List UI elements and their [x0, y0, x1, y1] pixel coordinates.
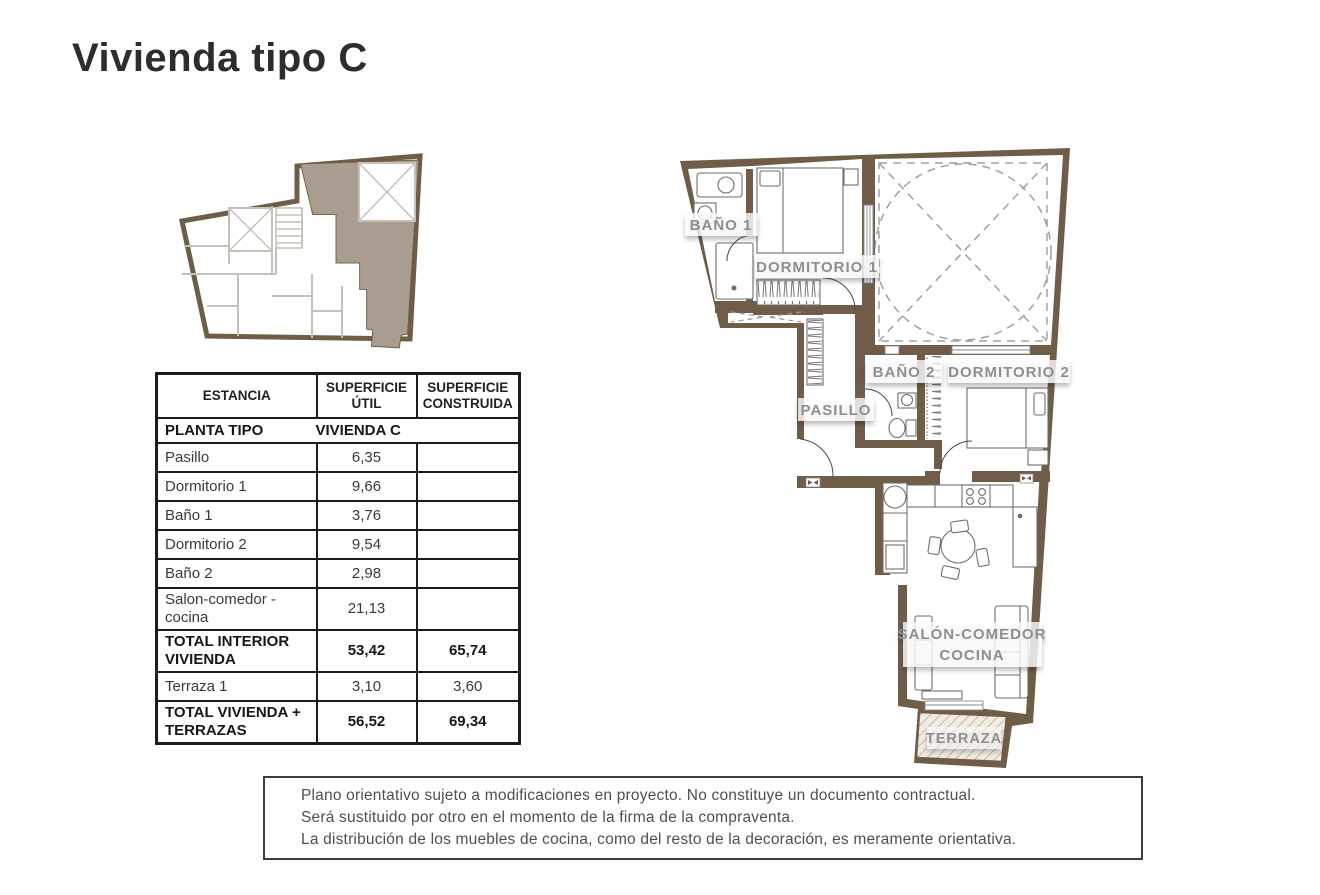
disclaimer-line-2: Será sustituido por otro en el momento d…	[301, 807, 1131, 829]
room-name: Dormitorio 2	[157, 530, 317, 559]
chair	[928, 536, 941, 554]
room-built	[417, 501, 520, 530]
room-util: 6,35	[317, 443, 417, 472]
disclaimer-box: Plano orientativo sujeto a modificacione…	[263, 776, 1143, 860]
areas-table: ESTANCIA SUPERFICIE ÚTIL SUPERFICIE CONS…	[155, 372, 521, 745]
table-row: Salon-comedor - cocina 21,13	[157, 588, 520, 630]
page-title: Vivienda tipo C	[72, 36, 368, 81]
room-util: 56,52	[317, 701, 417, 744]
table-row: Baño 2 2,98	[157, 559, 520, 588]
label-pasillo: PASILLO	[801, 402, 872, 419]
label-terraza: TERRAZA	[926, 731, 1002, 747]
room-name: Terraza 1	[157, 672, 317, 701]
room-util: 9,54	[317, 530, 417, 559]
dining-table	[941, 529, 975, 563]
kitchen-top-counter	[907, 485, 1013, 507]
terraza-sill	[922, 691, 962, 699]
kitchen-sink-round	[884, 486, 906, 508]
label-dormitorio1: DORMITORIO 1	[756, 259, 878, 276]
bano2-toilet	[889, 419, 905, 438]
header-superficie-util: SUPERFICIE ÚTIL	[317, 374, 417, 419]
room-built	[417, 443, 520, 472]
section-row: PLANTA TIPO VIVIENDA C	[157, 418, 520, 443]
label-salon-line2: COCINA	[939, 647, 1004, 664]
room-name: TOTAL VIVIENDA + TERRAZAS	[157, 701, 317, 744]
dorm2-nightstand	[1028, 450, 1048, 465]
room-name: Salon-comedor - cocina	[157, 588, 317, 630]
keyplan-stairs	[276, 208, 302, 248]
stove	[962, 485, 990, 507]
room-util: 9,66	[317, 472, 417, 501]
label-salon-line1: SALÓN-COMEDOR	[898, 625, 1047, 643]
room-name: Baño 1	[157, 501, 317, 530]
room-util: 3,10	[317, 672, 417, 701]
dorm1-nightstand	[844, 169, 858, 185]
room-built	[417, 588, 520, 630]
room-name: Pasillo	[157, 443, 317, 472]
chair	[976, 548, 990, 567]
header-superficie-construida: SUPERFICIE CONSTRUIDA	[417, 374, 520, 419]
table-row: Terraza 1 3,10 3,60	[157, 672, 520, 701]
disclaimer-line-3: La distribución de los muebles de cocina…	[301, 829, 1131, 851]
room-built: 65,74	[417, 630, 520, 672]
room-name: Baño 2	[157, 559, 317, 588]
room-name: Dormitorio 1	[157, 472, 317, 501]
dorm1-pillow	[760, 171, 780, 186]
room-util: 2,98	[317, 559, 417, 588]
label-dormitorio2: DORMITORIO 2	[948, 364, 1070, 381]
room-built	[417, 559, 520, 588]
header-estancia: ESTANCIA	[157, 374, 317, 419]
room-built	[417, 530, 520, 559]
table-row: Dormitorio 1 9,66	[157, 472, 520, 501]
room-built: 69,34	[417, 701, 520, 744]
table-row-total-vivienda: TOTAL VIVIENDA + TERRAZAS 56,52 69,34	[157, 701, 520, 744]
entrance-opening	[796, 439, 805, 476]
table-row: Baño 1 3,76	[157, 501, 520, 530]
room-util: 21,13	[317, 588, 417, 630]
room-built: 3,60	[417, 672, 520, 701]
table-row: Pasillo 6,35	[157, 443, 520, 472]
keyplan-patio-1	[359, 163, 415, 221]
areas-table-header-row: ESTANCIA SUPERFICIE ÚTIL SUPERFICIE CONS…	[157, 374, 520, 419]
kitchen-tall-unit	[1013, 507, 1037, 567]
bano1-shower	[716, 243, 753, 299]
room-util: 53,42	[317, 630, 417, 672]
table-row: Dormitorio 2 9,54	[157, 530, 520, 559]
floorplan-drawing: BAÑO 1 DORMITORIO 1 BAÑO 2 DORMITORIO 2 …	[670, 143, 1090, 778]
section-planta-tipo: PLANTA TIPO	[165, 422, 263, 439]
dorm2-pillow	[1034, 393, 1045, 415]
disclaimer-line-1: Plano orientativo sujeto a modificacione…	[301, 785, 1131, 807]
room-util: 3,76	[317, 501, 417, 530]
label-bano1: BAÑO 1	[690, 216, 753, 234]
floorplan: BAÑO 1 DORMITORIO 1 BAÑO 2 DORMITORIO 2 …	[670, 143, 1090, 778]
section-vivienda-c: VIVIENDA C	[316, 422, 401, 440]
keyplan-patio-2	[229, 208, 272, 251]
room-name: TOTAL INTERIOR VIVIENDA	[157, 630, 317, 672]
label-bano2: BAÑO 2	[873, 363, 936, 381]
table-row-total-interior: TOTAL INTERIOR VIVIENDA 53,42 65,74	[157, 630, 520, 672]
keyplan-drawing	[172, 146, 432, 361]
keyplan	[172, 146, 432, 361]
room-built	[417, 472, 520, 501]
chair	[950, 520, 968, 533]
